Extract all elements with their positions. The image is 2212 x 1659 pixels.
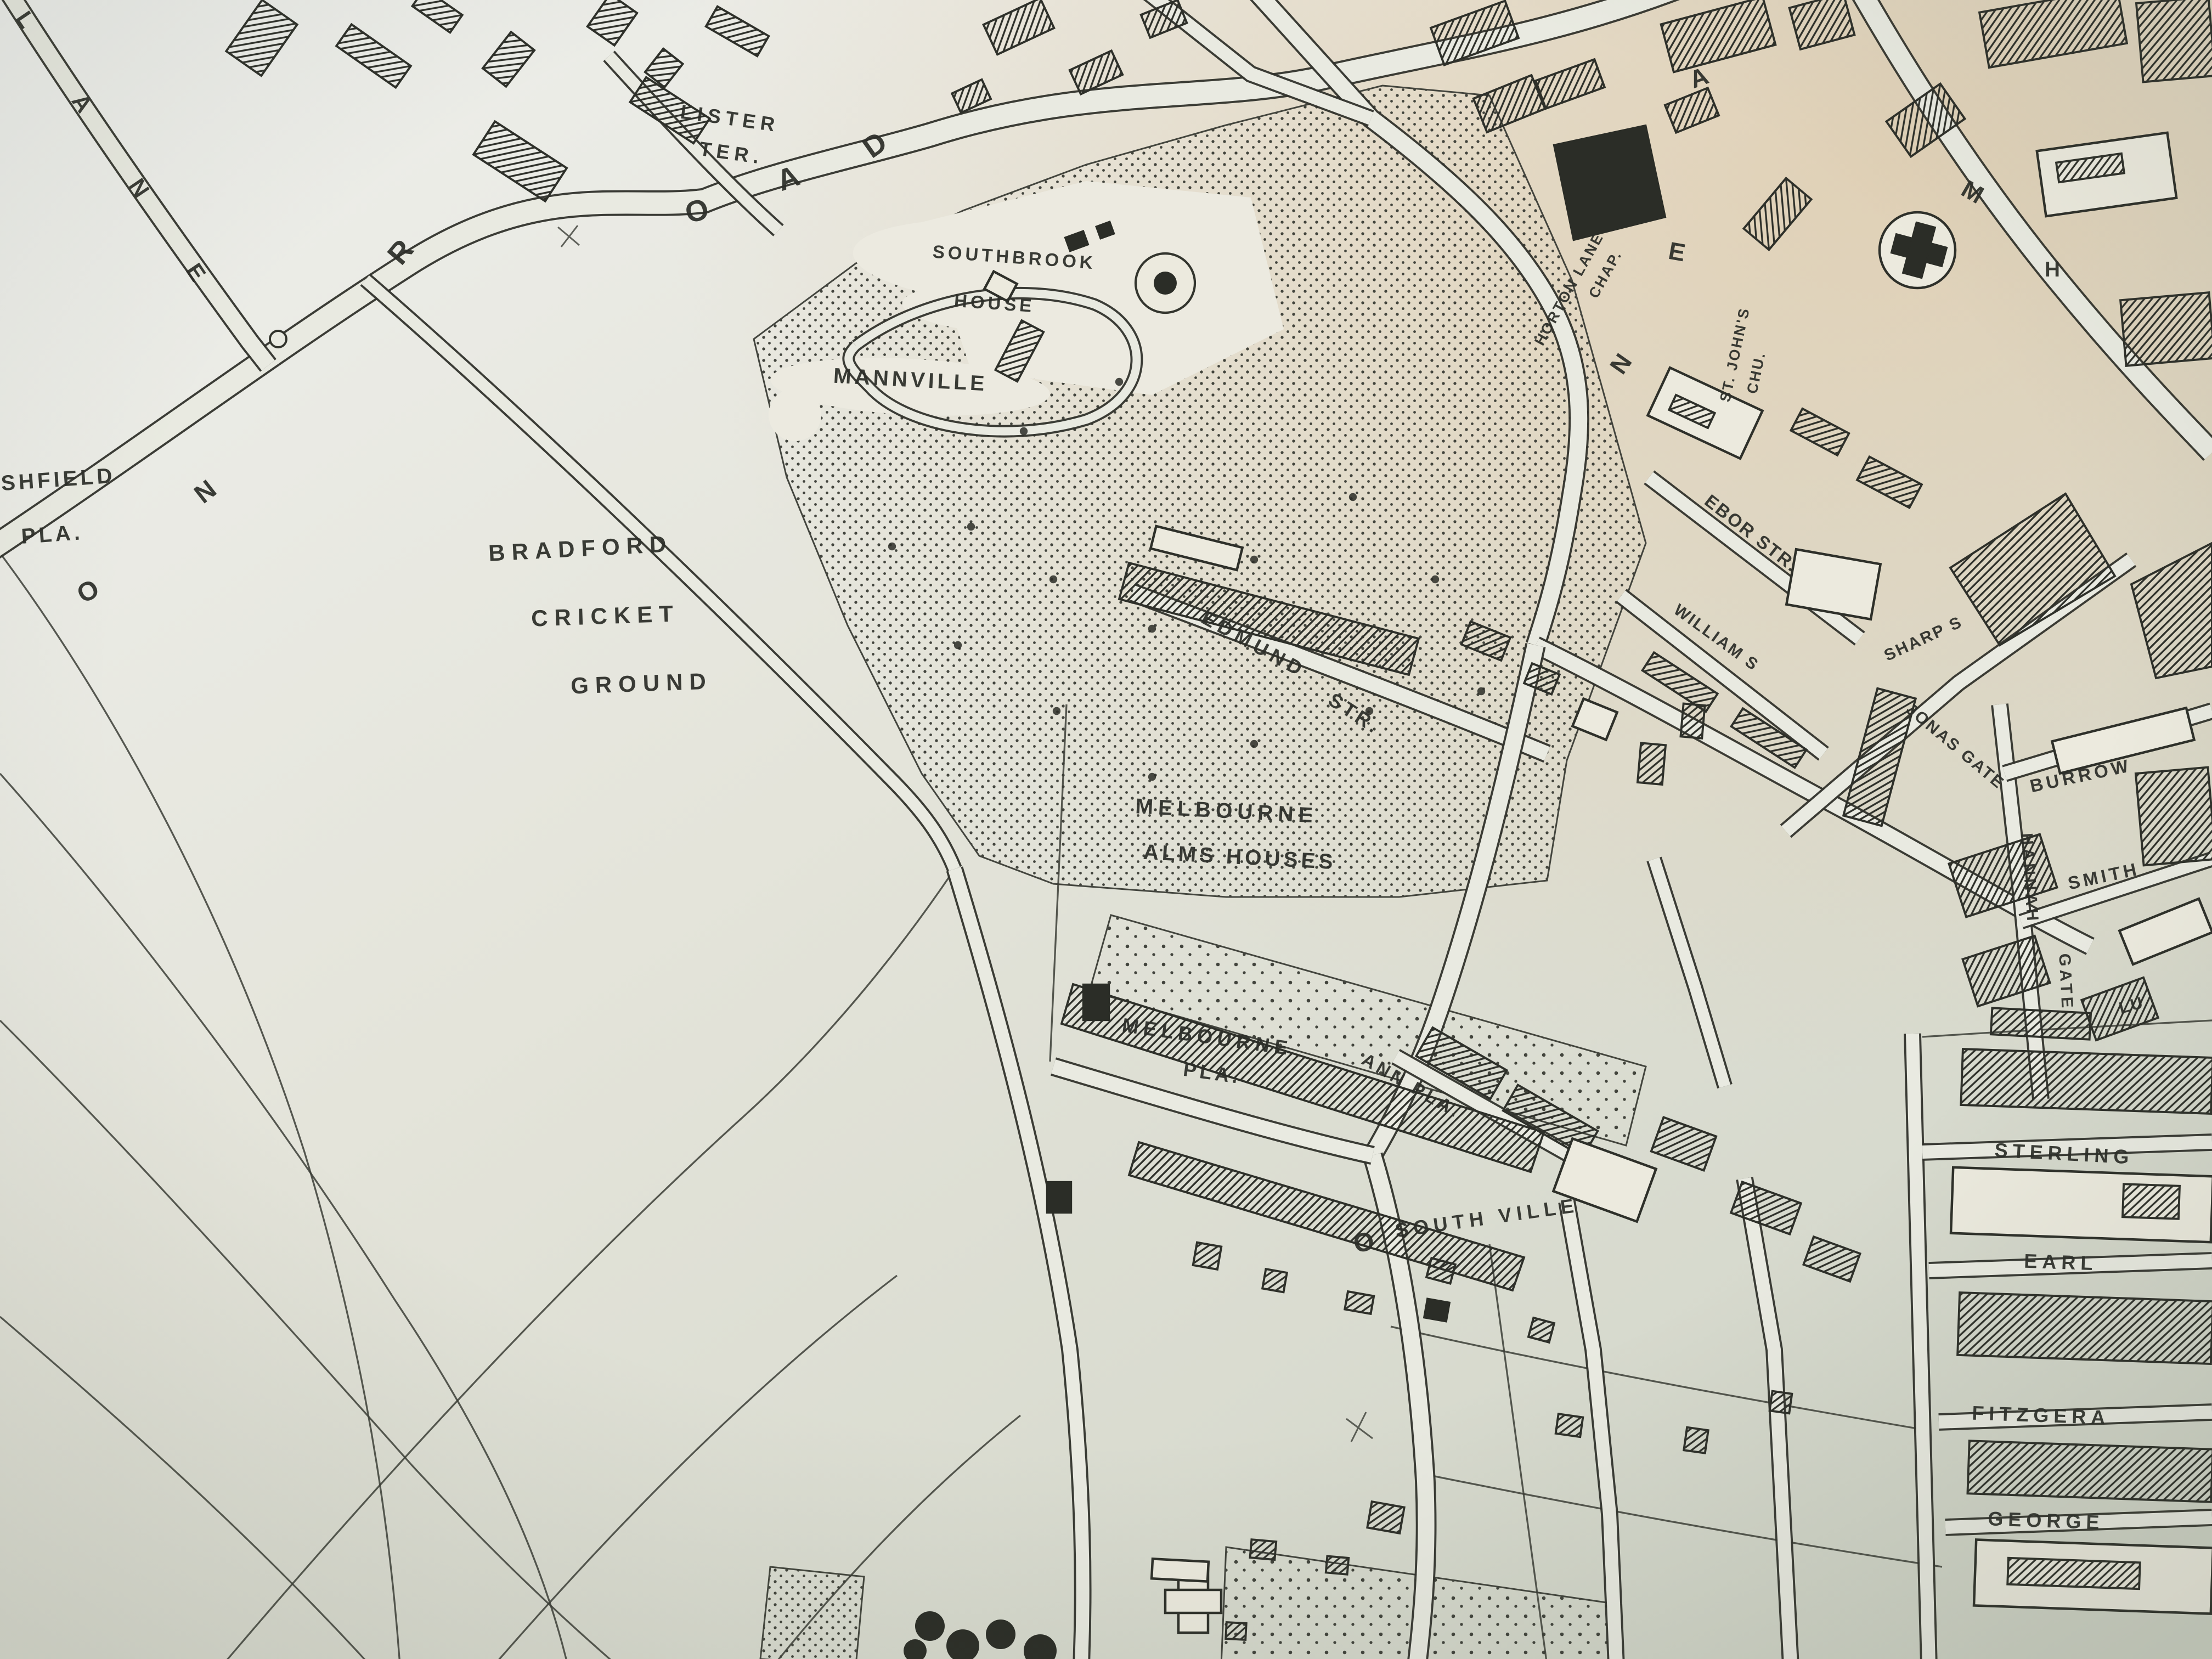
map-photo: LANELISTERTER.ROADSOUTHBROOKHOUSEMANNVIL… bbox=[0, 0, 2212, 1659]
photo-vignette bbox=[0, 0, 2212, 1659]
map-canvas: LANELISTERTER.ROADSOUTHBROOKHOUSEMANNVIL… bbox=[0, 0, 2212, 1659]
